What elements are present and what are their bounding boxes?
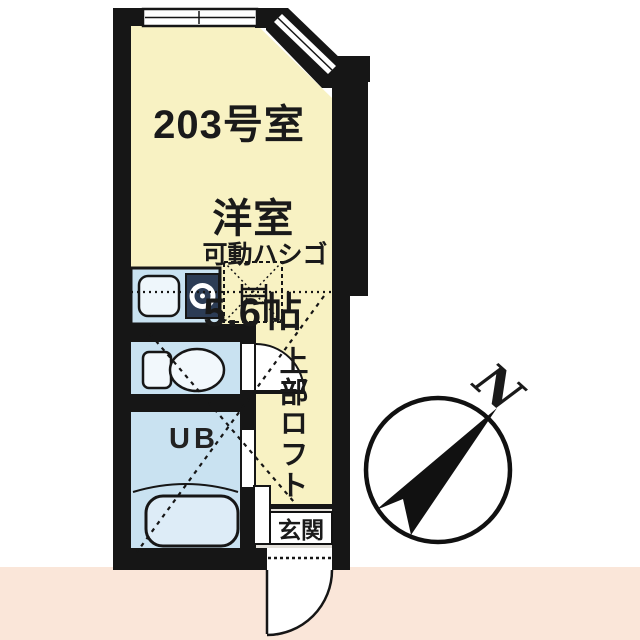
entrance-label: 玄関 (269, 511, 333, 545)
room-size: 5.6帖 (203, 291, 303, 335)
genkan-side-panel (254, 486, 270, 544)
loft-label: 上部ロフト (270, 346, 312, 526)
toilet-bowl (170, 349, 224, 391)
room-label: 203号室 洋室 5.6帖 (114, 102, 344, 337)
unit-bath-label: UB (152, 423, 236, 456)
top-wall-left-block (113, 8, 145, 26)
unit-bath-door-opening (242, 430, 254, 487)
bottom-wall (113, 548, 267, 570)
toilet-tank (143, 352, 171, 388)
floor-plan: 203号室 洋室 5.6帖 可動ハシゴ 上部ロフト UB 玄関 N (0, 0, 640, 640)
toilet-bottom-wall (131, 394, 256, 412)
bottom-right-wall-stub (332, 548, 350, 570)
room-number: 203号室 (153, 103, 305, 147)
bathtub (146, 496, 238, 546)
ladder-label: 可動ハシゴ (180, 235, 350, 271)
right-wall-lower (332, 296, 350, 570)
toilet-door-opening (242, 344, 254, 390)
